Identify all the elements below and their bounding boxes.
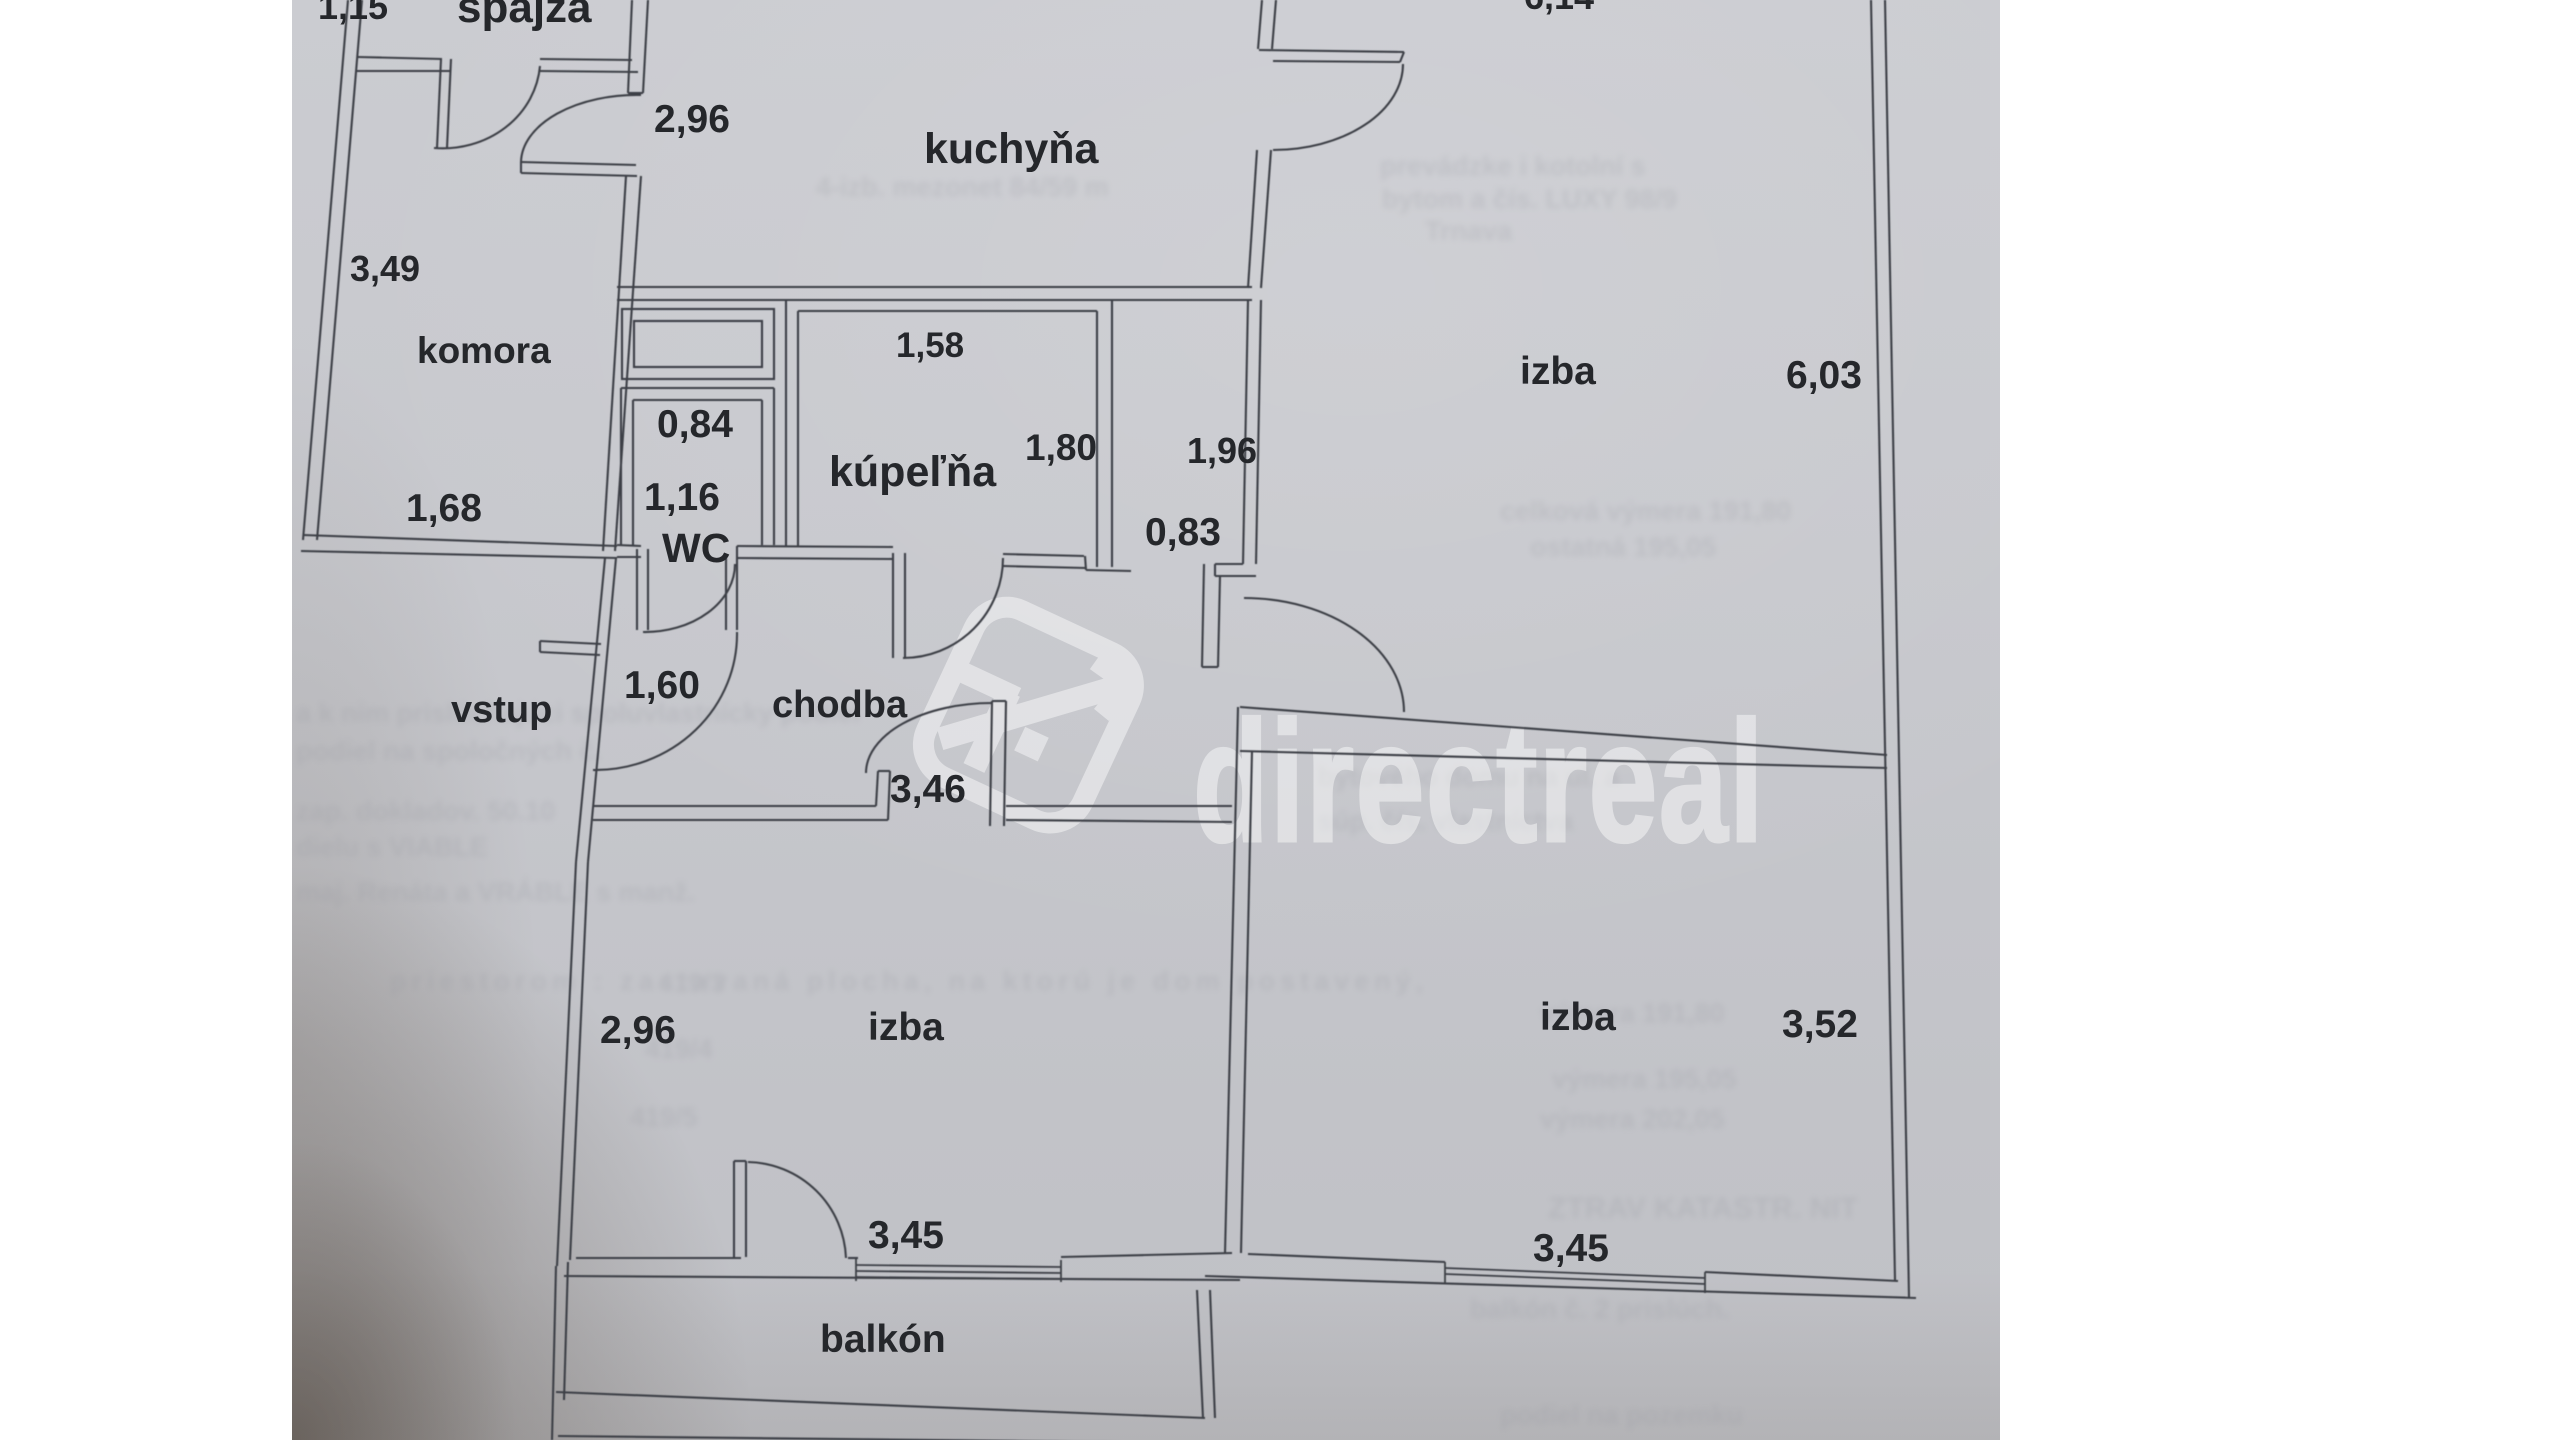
svg-text:1,68: 1,68 bbox=[406, 487, 482, 530]
svg-text:1,80: 1,80 bbox=[1025, 427, 1097, 468]
svg-text:3,52: 3,52 bbox=[1782, 1003, 1858, 1046]
svg-text:zap. dokladov. 50.10: zap. dokladov. 50.10 bbox=[296, 796, 555, 826]
svg-text:1,58: 1,58 bbox=[896, 326, 964, 365]
svg-text:maj. Renáta a VRÁBLE s manž.: maj. Renáta a VRÁBLE s manž. bbox=[296, 876, 695, 907]
svg-text:419/5: 419/5 bbox=[630, 1102, 698, 1132]
svg-text:izba: izba bbox=[1540, 996, 1616, 1039]
svg-text:kúpeľňa: kúpeľňa bbox=[829, 448, 997, 496]
svg-text:špajza: špajza bbox=[457, 0, 592, 32]
svg-text:3,45: 3,45 bbox=[868, 1214, 944, 1257]
svg-text:1,15: 1,15 bbox=[318, 0, 388, 27]
svg-text:priestorom : zastavaná plocha,: priestorom : zastavaná plocha, na ktorú … bbox=[390, 966, 1428, 996]
svg-text:výmera 195,05: výmera 195,05 bbox=[1552, 1064, 1737, 1094]
svg-text:dielu s VIABLE: dielu s VIABLE bbox=[296, 832, 488, 862]
svg-text:3,45: 3,45 bbox=[1533, 1227, 1609, 1270]
svg-text:directreal: directreal bbox=[1193, 685, 1765, 878]
svg-text:2,96: 2,96 bbox=[654, 98, 730, 141]
svg-text:Trnava: Trnava bbox=[1425, 216, 1513, 246]
svg-text:komora: komora bbox=[417, 330, 551, 371]
svg-text:6,03: 6,03 bbox=[1786, 354, 1862, 397]
svg-text:podiel na pozemku: podiel na pozemku bbox=[1500, 1400, 1743, 1430]
svg-text:chodba: chodba bbox=[772, 684, 908, 726]
svg-text:4-izb. mezonet 84/59 m: 4-izb. mezonet 84/59 m bbox=[816, 172, 1109, 202]
svg-text:kuchyňa: kuchyňa bbox=[924, 125, 1100, 173]
svg-text:izba: izba bbox=[868, 1006, 944, 1049]
svg-text:podiel na spoločných č.: podiel na spoločných č. bbox=[296, 736, 602, 766]
svg-text:izba: izba bbox=[1520, 350, 1596, 393]
svg-text:WC: WC bbox=[662, 525, 730, 571]
svg-text:prevádzke i kotolní s: prevádzke i kotolní s bbox=[1380, 151, 1646, 181]
svg-text:balkón: balkón bbox=[820, 1318, 946, 1361]
svg-text:ostatná 195,05: ostatná 195,05 bbox=[1530, 532, 1716, 562]
svg-text:2,96: 2,96 bbox=[600, 1009, 676, 1052]
svg-text:0,83: 0,83 bbox=[1145, 511, 1221, 554]
svg-text:1,96: 1,96 bbox=[1187, 430, 1257, 471]
svg-text:ZTRAV KATASTR. NIT: ZTRAV KATASTR. NIT bbox=[1548, 1192, 1858, 1225]
svg-text:3,46: 3,46 bbox=[890, 768, 966, 811]
svg-text:1,16: 1,16 bbox=[644, 476, 720, 519]
svg-text:6,14: 6,14 bbox=[1524, 0, 1594, 17]
svg-text:výmera 202,05: výmera 202,05 bbox=[1540, 1104, 1725, 1134]
svg-text:1,60: 1,60 bbox=[624, 664, 700, 707]
svg-text:vstup: vstup bbox=[451, 689, 552, 731]
svg-text:balkón č. 2 prislúch.: balkón č. 2 prislúch. bbox=[1470, 1294, 1730, 1324]
svg-text:celková výmera 191,80: celková výmera 191,80 bbox=[1500, 496, 1791, 526]
svg-text:0,84: 0,84 bbox=[657, 403, 733, 446]
svg-text:bytom a čís. LUXY 98/9: bytom a čís. LUXY 98/9 bbox=[1382, 184, 1677, 214]
svg-text:3,49: 3,49 bbox=[350, 248, 420, 289]
